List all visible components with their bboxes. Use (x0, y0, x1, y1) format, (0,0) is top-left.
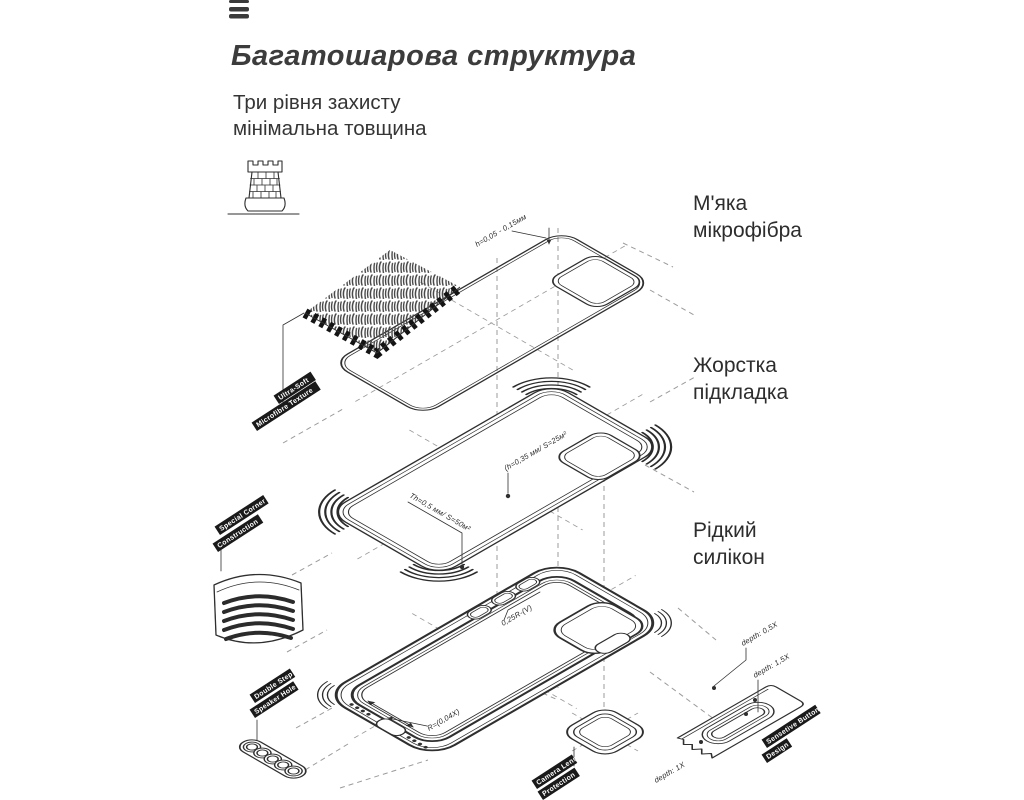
speaker-strip-detail (235, 737, 311, 781)
menu-bars-icon (229, 0, 249, 19)
label-soft-microfiber-line1: М'яка (693, 190, 802, 217)
label-hard-backing-line2: підкладка (693, 379, 788, 406)
dim-microfiber-thickness: h=0,05 - 0,15мм (474, 212, 528, 249)
camera-ring-detail (539, 694, 671, 770)
dim-depth-mid: depth: 1X (653, 760, 688, 785)
hard-shell-layer (272, 345, 731, 610)
dim-depth-large: depth: 1,5X (752, 651, 792, 679)
label-liquid-silicone: Рідкий силікон (693, 517, 765, 571)
subtitle-line2: мінімальна товщина (233, 116, 427, 142)
label-liquid-silicone-line1: Рідкий (693, 517, 765, 544)
sheet-camera-cutout (547, 253, 646, 310)
infographic-page: h=0,05 - 0,15мм (h=0,35 мм/ S=25м² Th=0,… (0, 0, 1024, 800)
page-subtitle: Три рівня захисту мінімальна товщина (233, 90, 427, 142)
exploded-case-diagram: h=0,05 - 0,15мм (h=0,35 мм/ S=25м² Th=0,… (0, 0, 1024, 800)
dim-depth-small: depth: 0,5X (740, 619, 780, 647)
label-hard-backing: Жорстка підкладка (693, 352, 788, 406)
castle-tower-icon (228, 161, 299, 214)
page-title: Багатошарова структура (231, 40, 636, 73)
label-liquid-silicone-line2: силікон (693, 544, 765, 571)
label-hard-backing-line1: Жорстка (693, 352, 788, 379)
silicone-case-layer (275, 530, 721, 788)
label-soft-microfiber: М'яка мікрофібра (693, 190, 802, 244)
subtitle-line1: Три рівня захисту (233, 90, 427, 116)
label-soft-microfiber-line2: мікрофібра (693, 217, 802, 244)
corner-detail (214, 545, 303, 643)
